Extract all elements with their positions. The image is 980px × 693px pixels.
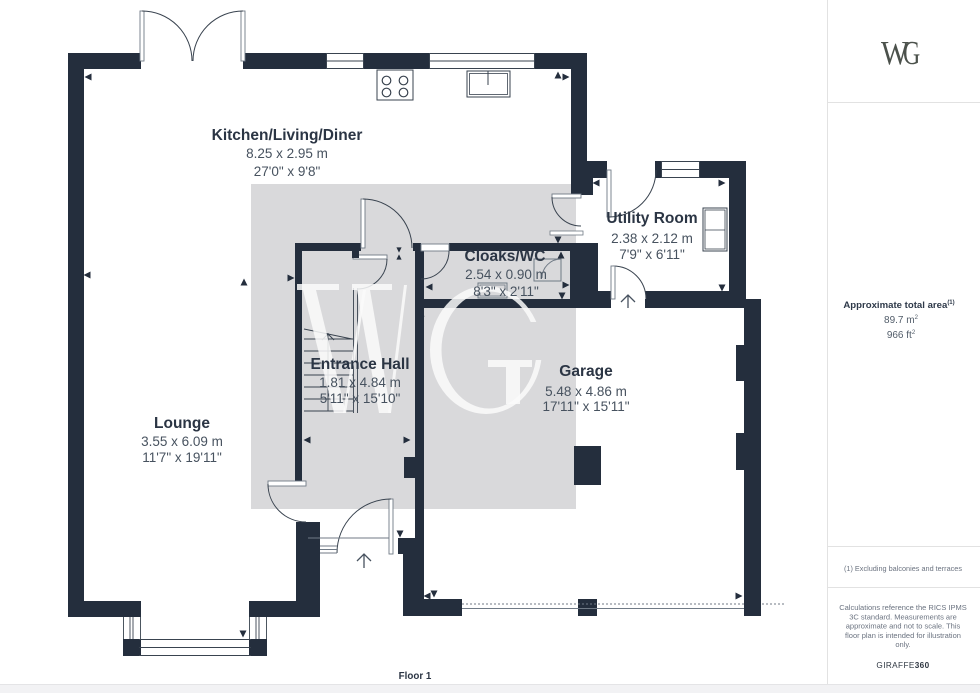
svg-text:27'0" x 9'8": 27'0" x 9'8" <box>254 164 321 179</box>
svg-text:GIRAFFE360: GIRAFFE360 <box>876 661 929 670</box>
svg-text:7'9" x 6'11": 7'9" x 6'11" <box>619 247 685 262</box>
svg-text:only.: only. <box>895 640 910 649</box>
svg-text:3C standard. Measurements are: 3C standard. Measurements are <box>849 612 957 621</box>
svg-text:5.48 x 4.86 m: 5.48 x 4.86 m <box>545 384 627 399</box>
svg-text:17'11" x 15'11": 17'11" x 15'11" <box>542 399 629 414</box>
svg-text:Cloaks/WC: Cloaks/WC <box>465 248 546 265</box>
svg-text:(1) Excluding balconies and te: (1) Excluding balconies and terraces <box>844 564 962 573</box>
svg-text:Kitchen/Living/Diner: Kitchen/Living/Diner <box>212 127 363 144</box>
svg-text:8'3" x 2'11": 8'3" x 2'11" <box>473 284 539 299</box>
svg-text:floor plan is intended for ill: floor plan is intended for illustration <box>845 631 961 640</box>
svg-text:1.81 x 4.84 m: 1.81 x 4.84 m <box>319 375 401 390</box>
svg-text:Garage: Garage <box>559 363 613 380</box>
svg-text:89.7 m2: 89.7 m2 <box>884 315 919 326</box>
svg-text:2.38 x 2.12 m: 2.38 x 2.12 m <box>611 231 693 246</box>
svg-text:Entrance Hall: Entrance Hall <box>310 356 409 373</box>
svg-text:Approximate total area(1): Approximate total area(1) <box>843 300 954 311</box>
svg-text:5'11" x 15'10": 5'11" x 15'10" <box>320 391 401 406</box>
svg-text:2.54 x 0.90 m: 2.54 x 0.90 m <box>465 267 547 282</box>
svg-text:8.25 x 2.95 m: 8.25 x 2.95 m <box>246 146 328 161</box>
svg-text:11'7" x 19'11": 11'7" x 19'11" <box>142 450 222 465</box>
svg-text:Calculations reference the RIC: Calculations reference the RICS IPMS <box>839 603 967 612</box>
svg-text:966 ft2: 966 ft2 <box>887 330 916 341</box>
svg-text:Lounge: Lounge <box>154 415 210 432</box>
svg-text:Utility Room: Utility Room <box>606 210 697 227</box>
svg-text:3.55 x 6.09 m: 3.55 x 6.09 m <box>141 434 223 449</box>
svg-text:G: G <box>903 35 920 72</box>
svg-text:Floor 1: Floor 1 <box>399 671 432 682</box>
svg-text:approximate and not to scale.: approximate and not to scale. This <box>846 622 961 631</box>
